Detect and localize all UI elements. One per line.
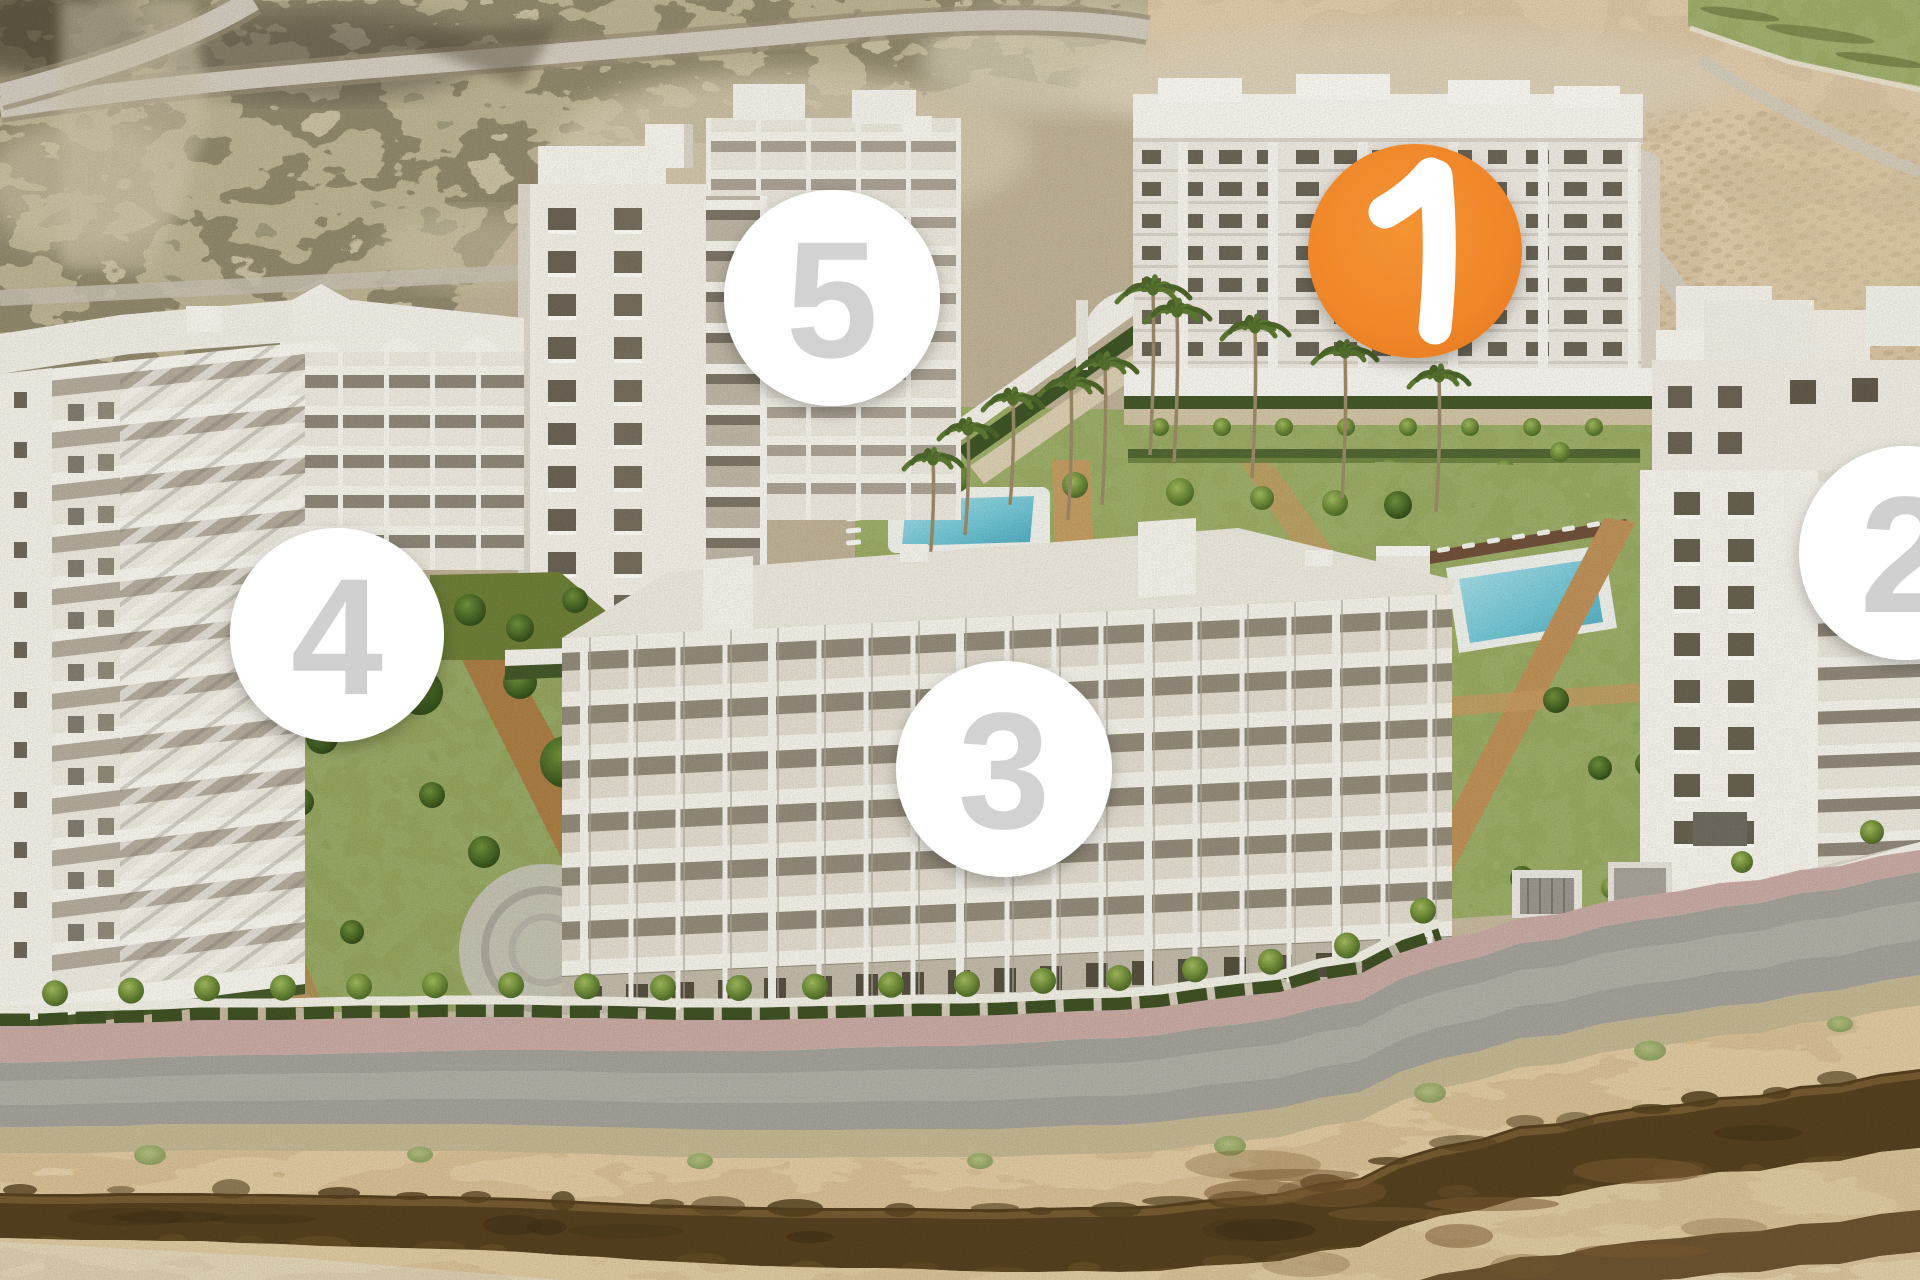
svg-text:4: 4 bbox=[291, 545, 383, 730]
svg-text:3: 3 bbox=[958, 679, 1050, 864]
svg-text:2: 2 bbox=[1860, 463, 1920, 648]
svg-text:5: 5 bbox=[786, 208, 878, 393]
